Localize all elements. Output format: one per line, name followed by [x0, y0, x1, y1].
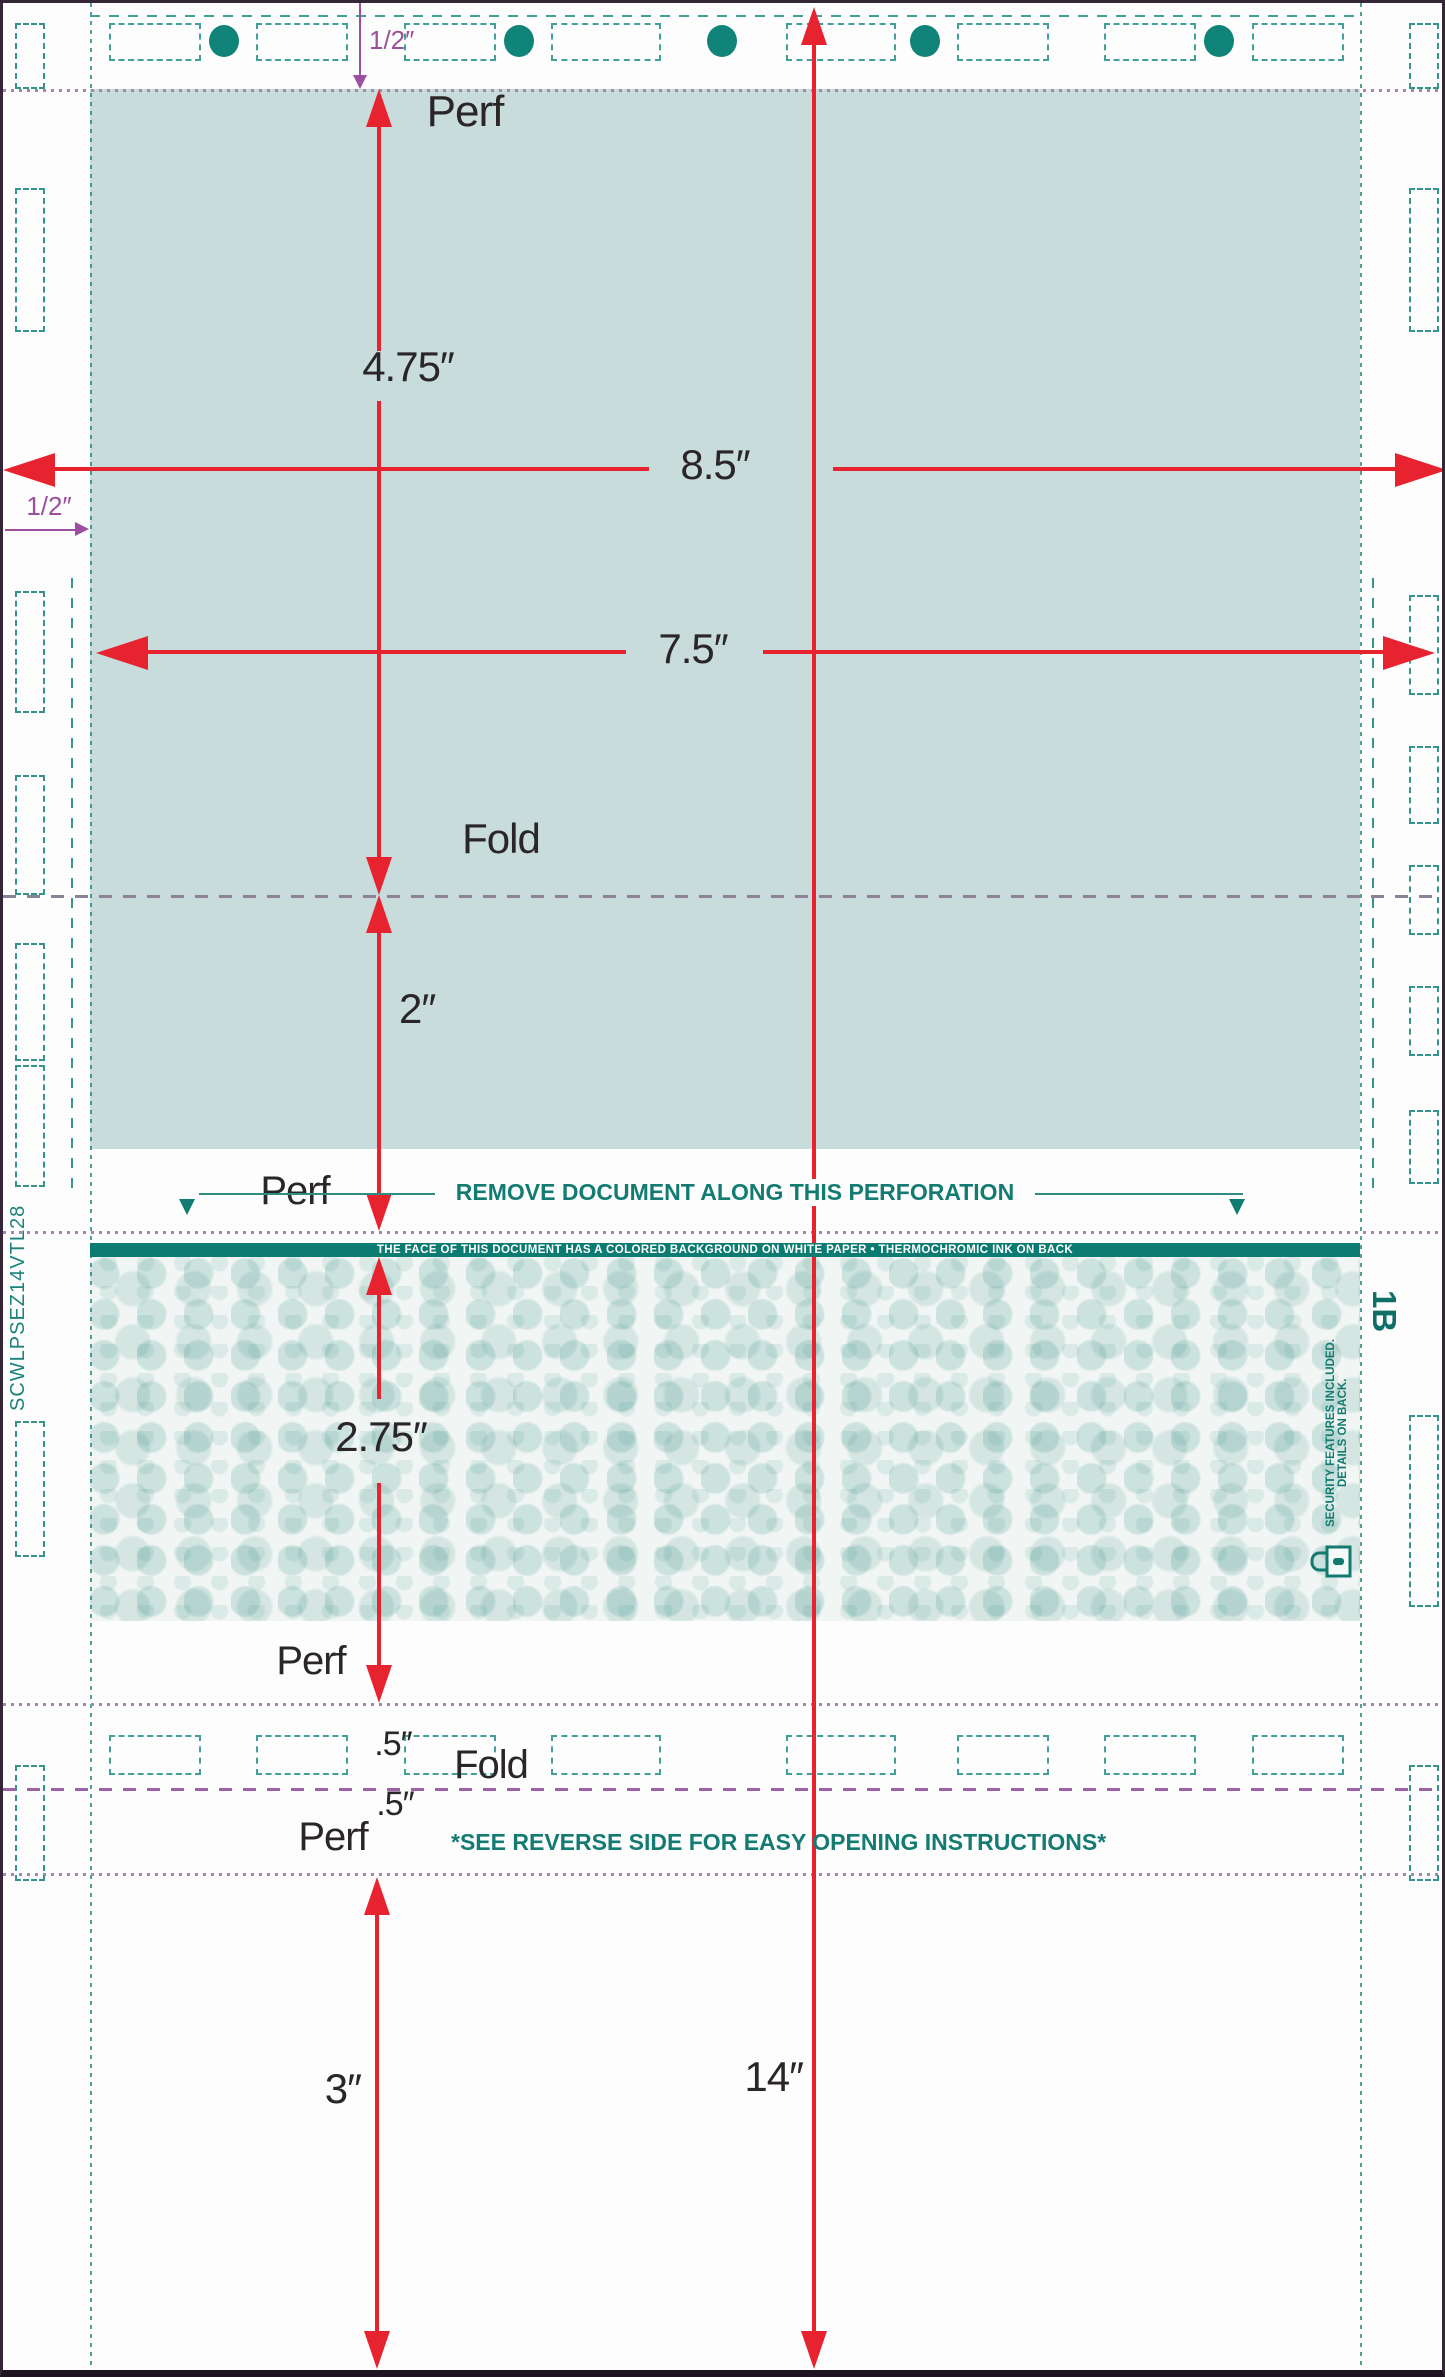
- perf-bottom-label: Perf: [263, 1815, 403, 1860]
- lock-icon: [1311, 1546, 1352, 1578]
- dim-275-line: [377, 1291, 381, 1399]
- form-code-left: SCWLPSEZ14VTL28: [7, 1193, 43, 1423]
- edge-tractor-mark-right: [1409, 188, 1439, 332]
- fold-line-2: [3, 1788, 1445, 1791]
- tractor-rect-mark: [404, 23, 496, 61]
- glue-rect-mark: [109, 1735, 201, 1775]
- edge-tractor-mark-left: [15, 1065, 45, 1187]
- glue-rect-mark: [1104, 1735, 1196, 1775]
- fold-top-label: Fold: [431, 815, 571, 863]
- feed-hole-icon: [504, 25, 534, 57]
- top-margin-arrow-down-icon: [353, 75, 367, 89]
- edge-tractor-mark-right: [1409, 23, 1439, 89]
- perf-lower-label: Perf: [241, 1639, 381, 1684]
- edge-tractor-mark-right: [1409, 746, 1439, 824]
- dim-85-arrow-left-icon: [3, 453, 55, 487]
- perf-line-1: [3, 1231, 1445, 1234]
- edge-tractor-mark-left: [15, 23, 45, 89]
- perf-top-label: Perf: [395, 87, 535, 137]
- tractor-rect-mark: [1104, 23, 1196, 61]
- edge-tractor-mark-right: [1409, 1415, 1439, 1607]
- dim-275-label: 2.75″: [301, 1413, 461, 1461]
- see-reverse-banner: *SEE REVERSE SIDE FOR EASY OPENING INSTR…: [451, 1829, 1051, 1856]
- lock-shackle: [1311, 1552, 1326, 1572]
- dim-3-arrow-up-icon: [364, 1877, 390, 1915]
- form-code-right: 1B: [1363, 1271, 1403, 1351]
- dim-14-arrow-down-icon: [801, 2331, 827, 2369]
- glue-rect-mark: [1252, 1735, 1344, 1775]
- perf-line-3: [3, 1873, 1445, 1876]
- dim-75-label: 7.5″: [613, 625, 773, 673]
- left-margin-arrow-line: [5, 529, 75, 531]
- feed-hole-icon: [209, 25, 239, 57]
- dim-2-label: 2″: [399, 985, 435, 1033]
- dim-85-label: 8.5″: [635, 441, 795, 489]
- left-margin-label: 1/2″: [17, 491, 81, 522]
- top-margin-label: 1/2″: [369, 25, 414, 56]
- dim-75-arrow-right-icon: [1383, 636, 1435, 670]
- fold-line-1: [3, 895, 1445, 898]
- dim-2-arrow-down-icon: [366, 1193, 392, 1231]
- face-notice-text: THE FACE OF THIS DOCUMENT HAS A COLORED …: [377, 1244, 1073, 1256]
- fold-lower-label: Fold: [421, 1743, 561, 1788]
- dim-475-arrow-down-icon: [366, 857, 392, 895]
- security-note-vertical: SECURITY FEATURES INCLUDED. DETAILS ON B…: [1325, 1325, 1343, 1541]
- colored-background-panel: [90, 89, 1360, 1149]
- dim-75-arrow-left-icon: [96, 636, 148, 670]
- top-margin-arrow-line: [359, 3, 361, 77]
- left-boundary-dotted-line: [90, 3, 92, 2377]
- dim-475-label: 4.75″: [333, 343, 483, 391]
- feed-hole-icon: [1204, 25, 1234, 57]
- right-boundary-dotted-line: [1360, 3, 1362, 2377]
- left-strip-dashed-line: [71, 578, 73, 1193]
- edge-tractor-mark-left: [15, 1421, 45, 1557]
- perf-line-top: [3, 89, 1445, 92]
- edge-tractor-mark-right: [1409, 1765, 1439, 1881]
- dim-475-arrow-up-icon: [366, 89, 392, 127]
- glue-rect-mark: [551, 1735, 661, 1775]
- edge-tractor-mark-left: [15, 1765, 45, 1881]
- edge-tractor-mark-right: [1409, 1110, 1439, 1184]
- dim-3-arrow-down-icon: [364, 2331, 390, 2369]
- edge-tractor-mark-left: [15, 943, 45, 1061]
- thermochromic-bar: THE FACE OF THIS DOCUMENT HAS A COLORED …: [90, 1243, 1360, 1257]
- dim-275-arrow-up-icon: [366, 1257, 392, 1295]
- edge-tractor-mark-right: [1409, 865, 1439, 935]
- feed-hole-icon: [707, 25, 737, 57]
- form-spec-diagram: 1/2″ 1/2″ 4.75″ 2″ 2.75″ 3″ 14″ 8.5″ 7.5…: [0, 0, 1445, 2377]
- dim-2-arrow-up-icon: [366, 895, 392, 933]
- edge-tractor-mark-left: [15, 188, 45, 332]
- top-strip-dashed-line: [90, 15, 1360, 17]
- glue-rect-mark: [786, 1735, 896, 1775]
- right-strip-dashed-line: [1372, 578, 1374, 1193]
- dim-85-arrow-right-icon: [1395, 453, 1445, 487]
- dim-85-line-right: [833, 467, 1399, 471]
- tractor-rect-mark: [256, 23, 348, 61]
- tractor-rect-mark: [109, 23, 201, 61]
- edge-tractor-mark-left: [15, 775, 45, 895]
- dim-475-line: [377, 123, 381, 351]
- remove-document-banner: REMOVE DOCUMENT ALONG THIS PERFORATION: [435, 1179, 1035, 1206]
- lock-body: [1326, 1546, 1352, 1578]
- tractor-rect-mark: [1252, 23, 1344, 61]
- perforation-arrow-right-icon: [1229, 1199, 1245, 1215]
- perf-line-2: [3, 1703, 1445, 1706]
- dim-3-label: 3″: [261, 2065, 361, 2113]
- dim-85-line: [49, 467, 649, 471]
- dim-2-line: [377, 929, 381, 1197]
- security-pattern-panel: [90, 1257, 1360, 1621]
- dim-75-line: [142, 650, 626, 654]
- dim-75-line-right: [763, 650, 1385, 654]
- left-margin-arrow-right-icon: [75, 522, 89, 536]
- perf-mid-label: Perf: [225, 1169, 365, 1214]
- glue-rect-mark: [957, 1735, 1049, 1775]
- tractor-rect-mark: [551, 23, 661, 61]
- lock-keyhole: [1333, 1558, 1344, 1565]
- dim-3-line: [375, 1911, 379, 2335]
- edge-tractor-mark-left: [15, 591, 45, 713]
- feed-hole-icon: [910, 25, 940, 57]
- dim-14-label: 14″: [703, 2053, 803, 2101]
- edge-tractor-mark-right: [1409, 986, 1439, 1056]
- perforation-arrow-left-icon: [179, 1199, 195, 1215]
- dim-14-arrow-up-icon: [801, 7, 827, 45]
- tractor-rect-mark: [957, 23, 1049, 61]
